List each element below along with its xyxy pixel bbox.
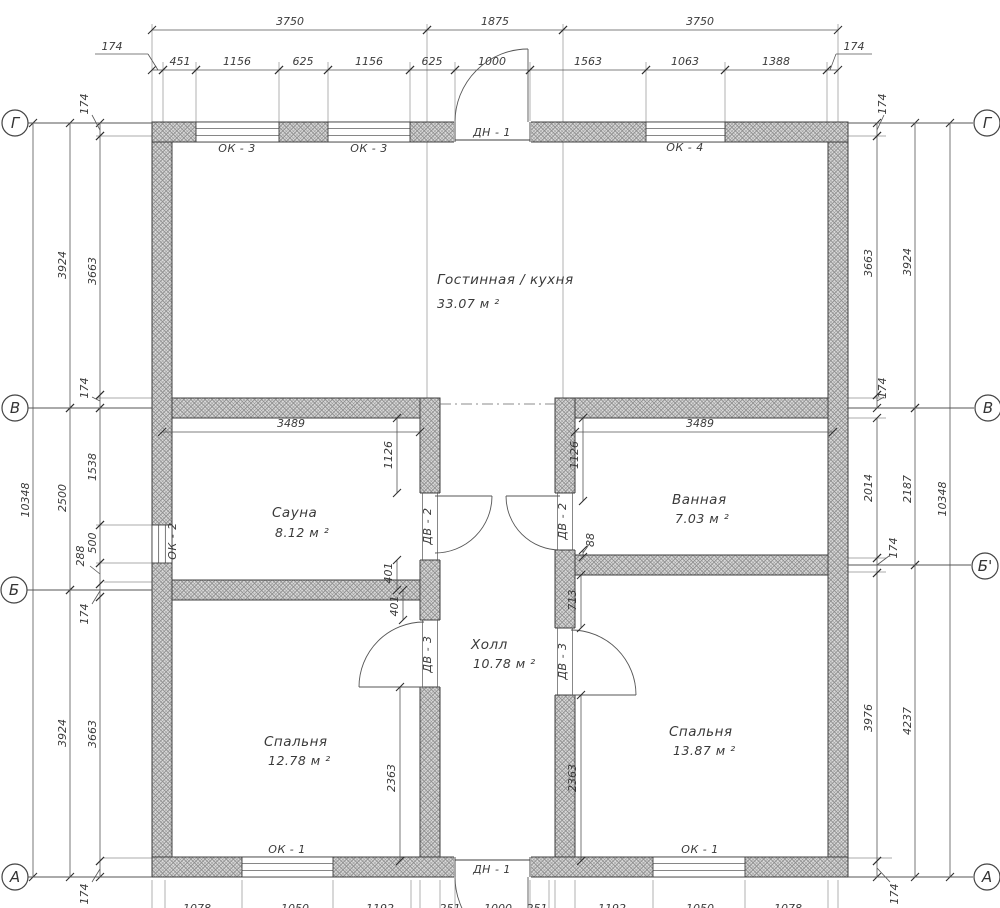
walls xyxy=(152,122,848,877)
dim-leader xyxy=(92,115,100,130)
window-ok3-b xyxy=(328,122,410,142)
dim-label: 1563 xyxy=(574,55,602,68)
dim-label: 1388 xyxy=(762,55,790,68)
room-name-hall: Холл xyxy=(470,637,508,653)
dim-label: 174 xyxy=(78,604,91,625)
tag-ok1-a: ОК - 1 xyxy=(268,843,305,856)
window-ok1-b xyxy=(653,857,745,877)
window-ok4 xyxy=(646,122,725,142)
dim-label: 401 xyxy=(382,563,395,584)
dim-leader xyxy=(148,54,158,70)
dim-leader xyxy=(92,869,100,882)
windows xyxy=(152,122,745,877)
dim-label: 288 xyxy=(74,546,87,567)
dim-label: 1050 xyxy=(281,902,309,908)
dim-leader xyxy=(92,397,100,401)
doors xyxy=(359,49,636,908)
dim-label: 2363 xyxy=(385,764,398,792)
window-ok1-a xyxy=(242,857,333,877)
room-name-bath: Ванная xyxy=(672,492,727,508)
tag-dn1-bottom: ДН - 1 xyxy=(472,863,511,876)
room-name-bed2: Спальня xyxy=(669,724,733,740)
floor-plan-page: 3750187537501744511156625115662510001563… xyxy=(0,0,1000,908)
room-area-bed1: 12.78 м ² xyxy=(268,753,331,768)
dim-label: 10348 xyxy=(936,482,949,517)
dim-label: 3976 xyxy=(862,704,875,732)
dim-label: 251 xyxy=(440,902,461,908)
dim-label: 3924 xyxy=(56,251,69,279)
dim-label: 1538 xyxy=(86,453,99,481)
dim-label: 1000 xyxy=(478,55,506,68)
wall-left xyxy=(152,142,172,857)
room-name-bed1: Спальня xyxy=(264,734,328,750)
dim-label: 1192 xyxy=(366,902,394,908)
dim-label: 713 xyxy=(566,590,579,611)
floor-plan-canvas: 3750187537501744511156625115662510001563… xyxy=(0,0,1000,908)
dim-label: 174 xyxy=(78,94,91,115)
dim-leader xyxy=(830,54,836,70)
dim-label: 251 xyxy=(527,902,548,908)
dim-label: 2187 xyxy=(901,475,914,503)
dim-label: 1156 xyxy=(355,55,383,68)
dim-label: 2500 xyxy=(56,484,69,512)
room-area-living: 33.07 м ² xyxy=(437,296,500,311)
tag-ok3-b: ОК - 3 xyxy=(350,142,387,155)
axis-label-right-v: В xyxy=(983,399,993,417)
dim-label: 3663 xyxy=(862,249,875,277)
tag-dn1-top: ДН - 1 xyxy=(472,126,511,139)
tag-ok2: ОК - 2 xyxy=(166,522,179,559)
axis-label-left-v: В xyxy=(10,399,20,417)
dim-label: 4237 xyxy=(901,707,914,735)
dim-label: 625 xyxy=(293,55,314,68)
dim-label: 1126 xyxy=(382,441,395,469)
dim-label: 88 xyxy=(584,533,597,547)
wall-v-left xyxy=(172,398,420,418)
dim-label: 174 xyxy=(876,94,889,115)
dim-label: 1078 xyxy=(183,902,211,908)
dim-label: 174 xyxy=(78,378,91,399)
room-area-bath: 7.03 м ² xyxy=(675,511,729,526)
dim-label: 500 xyxy=(86,533,99,554)
dim-label: 625 xyxy=(422,55,443,68)
opening-tags: ОК - 3 ОК - 3 ДН - 1 ОК - 4 ОК - 2 ОК - … xyxy=(166,126,719,876)
room-labels: Гостинная / кухня 33.07 м ² Сауна 8.12 м… xyxy=(264,272,736,768)
tag-dv3-right: ДВ - 3 xyxy=(556,642,569,680)
dim-leader xyxy=(90,566,100,574)
dim-label: 2363 xyxy=(566,764,579,792)
dim-label: 3924 xyxy=(56,719,69,747)
dim-label: 174 xyxy=(78,884,91,905)
dim-label: 2014 xyxy=(862,474,875,502)
dim-label: 1078 xyxy=(774,902,802,908)
dim-label: 3489 xyxy=(277,417,305,430)
dim-label: 401 xyxy=(388,596,401,617)
dim-label: 451 xyxy=(170,55,191,68)
tag-ok1-b: ОК - 1 xyxy=(681,843,718,856)
dim-label: 3750 xyxy=(276,15,304,28)
dim-label: 3489 xyxy=(686,417,714,430)
dim-label: 3750 xyxy=(686,15,714,28)
room-name-sauna: Сауна xyxy=(272,505,317,521)
dim-label: 1126 xyxy=(568,441,581,469)
dim-label: 1156 xyxy=(223,55,251,68)
dim-label: 174 xyxy=(876,378,889,399)
dim-label: 1050 xyxy=(686,902,714,908)
axis-label-right-b1: Б' xyxy=(978,557,992,575)
extension-lines xyxy=(96,24,892,908)
room-area-hall: 10.78 м ² xyxy=(473,656,536,671)
dim-label: 3924 xyxy=(901,248,914,276)
room-name-living: Гостинная / кухня xyxy=(437,272,574,288)
room-area-sauna: 8.12 м ² xyxy=(275,525,329,540)
dim-label: 174 xyxy=(887,538,900,559)
tag-ok4: ОК - 4 xyxy=(666,141,703,154)
dim-label: 1192 xyxy=(598,902,626,908)
wall-v-right xyxy=(575,398,828,418)
dim-label: 3663 xyxy=(86,720,99,748)
dim-label: 1000 xyxy=(484,902,512,908)
dim-label: 174 xyxy=(102,40,123,53)
dim-label: 174 xyxy=(844,40,865,53)
axis-label-right-a: А xyxy=(981,868,992,886)
tag-ok3-a: ОК - 3 xyxy=(218,142,255,155)
dim-label: 3663 xyxy=(86,257,99,285)
wall-b-right xyxy=(575,555,828,575)
dim-label: 174 xyxy=(888,884,901,905)
room-area-bed2: 13.87 м ² xyxy=(673,743,736,758)
window-ok3-a xyxy=(196,122,279,142)
dim-label: 1063 xyxy=(671,55,699,68)
tag-dv2-left: ДВ - 2 xyxy=(421,507,434,545)
dim-label: 1875 xyxy=(481,15,509,28)
dim-label: 10348 xyxy=(19,483,32,518)
axis-label-left-b: Б xyxy=(9,581,19,599)
axis-label-left-a: А xyxy=(9,868,20,886)
wall-right xyxy=(828,142,848,857)
axis-markers: Г В Б А Г В Б' А xyxy=(1,110,1000,890)
tag-dv3-left: ДВ - 3 xyxy=(421,635,434,673)
tag-dv2-right: ДВ - 2 xyxy=(556,502,569,540)
